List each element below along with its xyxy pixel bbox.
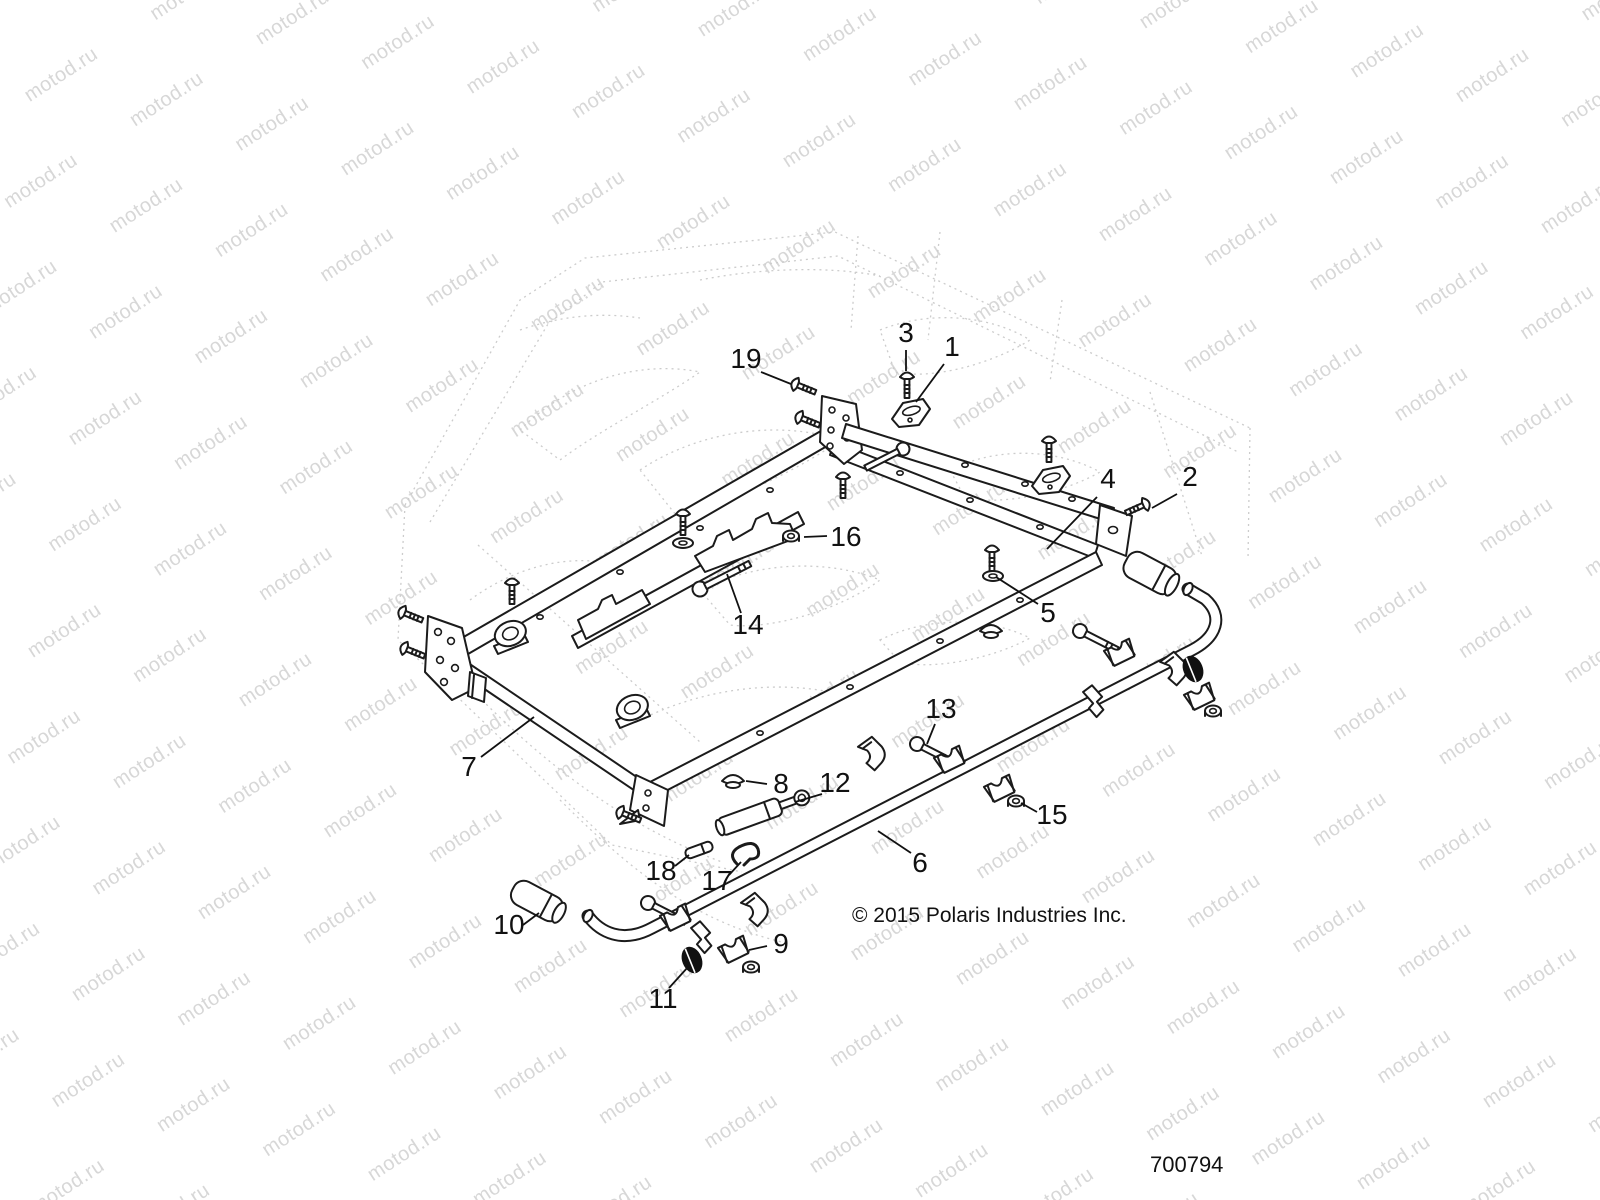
callout-18: 18 [645,855,676,886]
bar-end-cap-right [1120,548,1183,599]
pivot-pin [684,841,714,860]
part-number: 700794 [1150,1152,1223,1177]
parts-diagram-page: motod.rumotod.rumotod.rumotod.rumotod.ru… [0,0,1600,1200]
callout-13: 13 [925,693,956,724]
callout-1: 1 [944,331,960,362]
callout-3: 3 [898,317,914,348]
callout-14: 14 [732,609,763,640]
retainer-clip [732,843,758,865]
callout-10: 10 [493,909,524,940]
callout-19: 19 [730,343,761,374]
callout-12: 12 [819,767,850,798]
callout-9: 9 [773,928,789,959]
gas-strut [714,787,812,837]
callout-16: 16 [830,521,861,552]
callout-6: 6 [912,847,928,878]
callout-15: 15 [1036,799,1067,830]
callout-8: 8 [773,768,789,799]
callout-5: 5 [1040,597,1056,628]
callout-17: 17 [701,865,732,896]
callout-7: 7 [461,751,477,782]
parts-diagram-svg: 1 2 3 4 5 6 7 8 9 10 11 12 13 1 [0,0,1600,1200]
callout-11: 11 [648,983,677,1014]
rear-rail [842,424,1132,556]
callout-2: 2 [1182,461,1198,492]
callout-4: 4 [1100,463,1116,494]
copyright-text: © 2015 Polaris Industries Inc. [852,904,1127,927]
